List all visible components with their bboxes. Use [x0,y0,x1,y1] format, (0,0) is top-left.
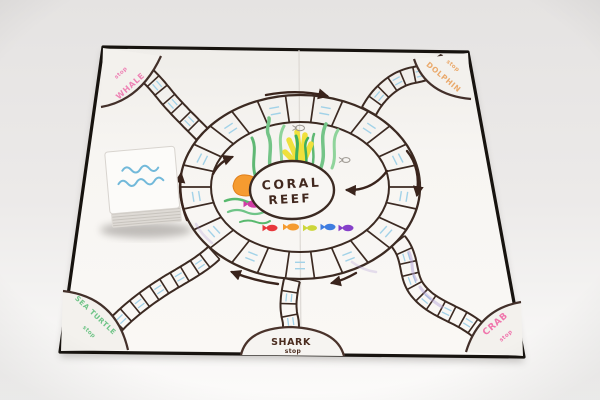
fish-drawing [307,225,317,231]
stop-sub-label: stop [285,348,302,355]
fish-drawing [267,225,278,231]
photo-frame: stop WHALE stop DOLPHIN SEA TURTLE stop … [0,0,600,400]
center-label-line2: REEF [268,191,313,207]
stop-label: SHARK [271,337,311,348]
center-label-line1: CORAL [261,174,321,192]
fish-drawing [287,224,299,231]
board-game-photo: stop WHALE stop DOLPHIN SEA TURTLE stop … [0,0,600,400]
fish-drawing [343,225,354,231]
fish-drawing [325,224,336,230]
seaweed-drawing [312,134,314,168]
card-deck [105,146,182,228]
